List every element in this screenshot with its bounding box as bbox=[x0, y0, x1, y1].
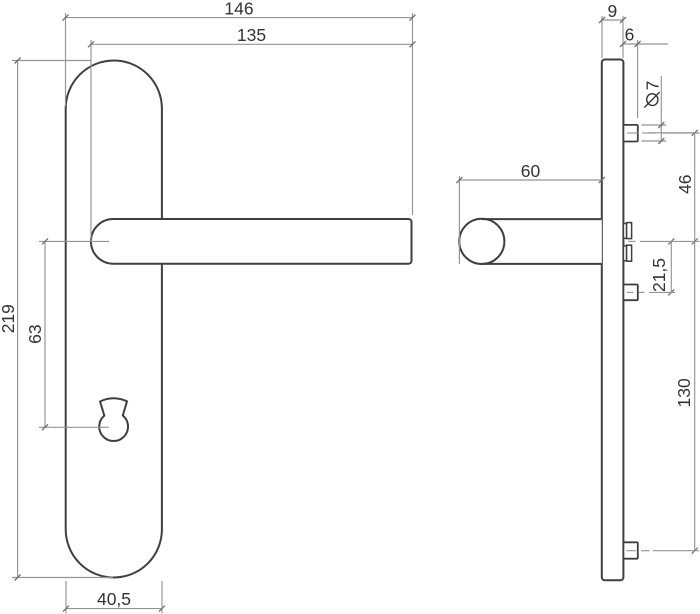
svg-text:46: 46 bbox=[675, 174, 695, 193]
svg-text:7: 7 bbox=[643, 81, 663, 91]
svg-text:21,5: 21,5 bbox=[649, 258, 669, 292]
svg-text:60: 60 bbox=[521, 161, 541, 181]
svg-text:130: 130 bbox=[674, 378, 694, 407]
svg-text:9: 9 bbox=[608, 1, 618, 21]
svg-text:6: 6 bbox=[625, 24, 635, 44]
svg-text:63: 63 bbox=[25, 324, 45, 343]
svg-text:40,5: 40,5 bbox=[97, 589, 131, 609]
svg-text:135: 135 bbox=[237, 25, 266, 45]
svg-text:146: 146 bbox=[224, 0, 253, 19]
svg-text:219: 219 bbox=[0, 304, 18, 333]
